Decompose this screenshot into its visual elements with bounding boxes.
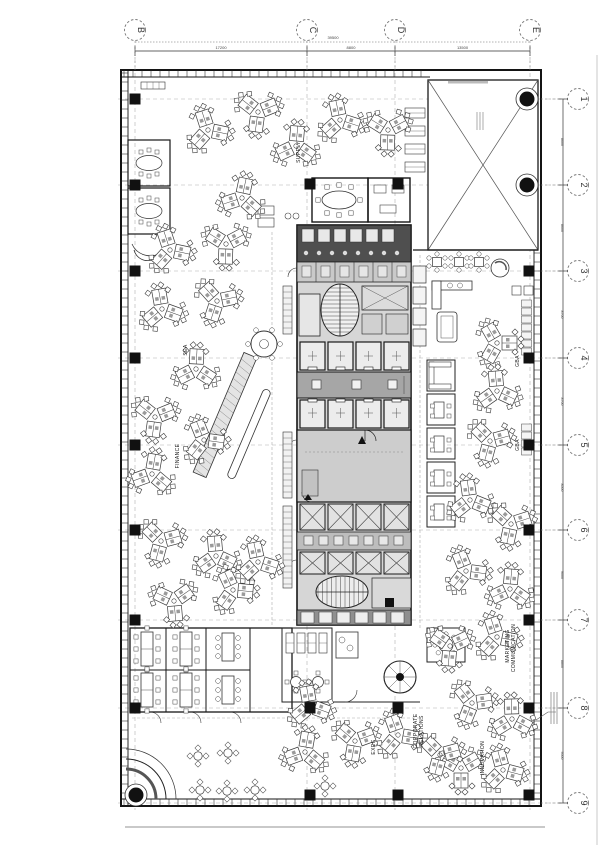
- phone-booths: [413, 329, 426, 346]
- grid-row-label: 9: [579, 800, 589, 805]
- dim-right-segment: 8800: [560, 660, 564, 668]
- grid-row-label: 7: [579, 617, 589, 622]
- service-core: [288, 225, 411, 625]
- dim-right-segment: 8500: [560, 484, 564, 492]
- dim-right-segment: 8600: [560, 138, 564, 146]
- dim-top-segment: 8800: [347, 45, 357, 50]
- grid-col-label: D: [396, 27, 406, 34]
- room-label: EXEC: [371, 739, 377, 754]
- locker-strips: [283, 286, 292, 588]
- room-label: SUPPLY: [296, 141, 302, 163]
- room-label: COMMUNICATION: [511, 624, 517, 672]
- grid-row-label: 6: [579, 527, 589, 532]
- room-label: RELATIONS: [419, 715, 425, 747]
- grid-row-label: 1: [579, 96, 589, 101]
- floor-plan-drawing: SUPPLYSEAFINANCEEXECCORPORATERELATIONSMA…: [0, 0, 600, 847]
- grid-row-label: 8: [579, 705, 589, 710]
- room-label: GBA: [515, 355, 521, 367]
- dim-right-segment: 9500: [560, 752, 564, 760]
- phone-booths: [413, 308, 426, 325]
- dim-overall: 39500: [327, 35, 339, 40]
- floor-plan-sheet: SUPPLYSEAFINANCEEXECCORPORATERELATIONSMA…: [0, 0, 600, 847]
- grid-col-label: B: [136, 27, 146, 33]
- room-label: INNOVATION: [480, 741, 486, 775]
- grid-row-label: 3: [579, 268, 589, 273]
- dim-right-segment: 9000: [560, 571, 564, 579]
- room-label: GBA: [515, 439, 521, 451]
- room-label: SEA: [183, 344, 189, 355]
- grid-row-label: 4: [579, 355, 589, 360]
- dim-right-segment: 8700: [560, 311, 564, 319]
- dim-right-segment: 8600: [560, 224, 564, 232]
- grid-row-label: 2: [579, 182, 589, 187]
- phone-booths: [413, 287, 426, 304]
- dim-top-segment: 17200: [215, 45, 227, 50]
- dim-right-segment: 8700: [560, 398, 564, 406]
- room-label: FINANCE: [175, 443, 181, 468]
- grid-row-label: 5: [579, 442, 589, 447]
- dim-top-segment: 13500: [457, 45, 469, 50]
- grid-col-label: E: [531, 27, 541, 33]
- phone-booths: [413, 266, 426, 283]
- grid-col-label: C: [308, 27, 318, 34]
